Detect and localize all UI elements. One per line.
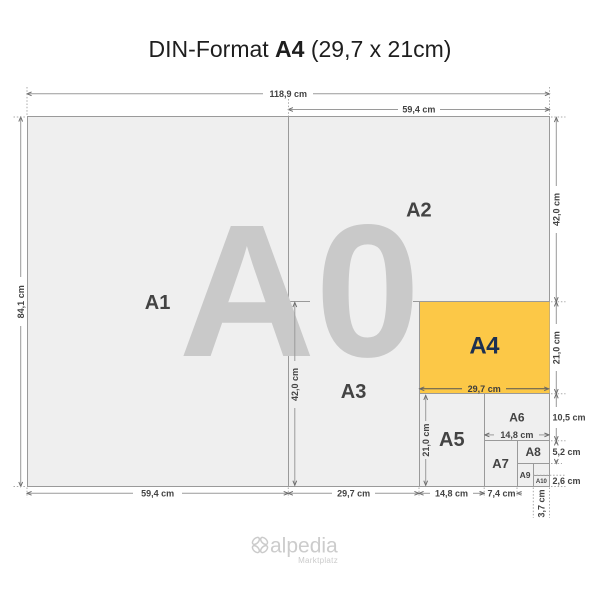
svg-text:A10: A10 bbox=[536, 479, 548, 485]
svg-text:A3: A3 bbox=[341, 381, 367, 403]
svg-text:14,8 cm: 14,8 cm bbox=[435, 489, 468, 499]
svg-text:59,4 cm: 59,4 cm bbox=[402, 105, 435, 115]
svg-text:Marktplatz: Marktplatz bbox=[298, 556, 338, 565]
svg-text:42,0 cm: 42,0 cm bbox=[552, 193, 562, 226]
svg-text:A1: A1 bbox=[145, 292, 171, 314]
svg-text:A9: A9 bbox=[520, 470, 531, 480]
svg-text:2,6 cm: 2,6 cm bbox=[553, 476, 581, 486]
svg-text:42,0 cm: 42,0 cm bbox=[290, 368, 300, 401]
svg-text:5,2 cm: 5,2 cm bbox=[553, 447, 581, 457]
svg-text:A0: A0 bbox=[179, 186, 421, 397]
svg-text:21,0 cm: 21,0 cm bbox=[552, 331, 562, 364]
svg-text:21,0 cm: 21,0 cm bbox=[421, 424, 431, 457]
svg-text:3,7 cm: 3,7 cm bbox=[537, 489, 547, 517]
svg-text:A8: A8 bbox=[526, 445, 542, 459]
svg-text:29,7 cm: 29,7 cm bbox=[337, 489, 370, 499]
svg-text:DIN-Format A4 (29,7 x 21cm): DIN-Format A4 (29,7 x 21cm) bbox=[149, 36, 452, 62]
svg-text:A6: A6 bbox=[509, 411, 525, 425]
svg-text:A4: A4 bbox=[469, 333, 500, 360]
svg-text:59,4 cm: 59,4 cm bbox=[141, 489, 174, 499]
svg-text:14,8 cm: 14,8 cm bbox=[500, 430, 533, 440]
svg-text:84,1 cm: 84,1 cm bbox=[16, 285, 26, 318]
svg-text:7,4 cm: 7,4 cm bbox=[487, 489, 515, 499]
svg-text:A5: A5 bbox=[439, 429, 465, 451]
svg-text:A2: A2 bbox=[406, 200, 432, 222]
svg-text:A7: A7 bbox=[492, 456, 509, 471]
svg-text:29,7 cm: 29,7 cm bbox=[468, 384, 501, 394]
svg-text:alpedia: alpedia bbox=[270, 535, 338, 558]
svg-text:118,9 cm: 118,9 cm bbox=[270, 89, 308, 99]
svg-text:10,5 cm: 10,5 cm bbox=[553, 413, 586, 423]
